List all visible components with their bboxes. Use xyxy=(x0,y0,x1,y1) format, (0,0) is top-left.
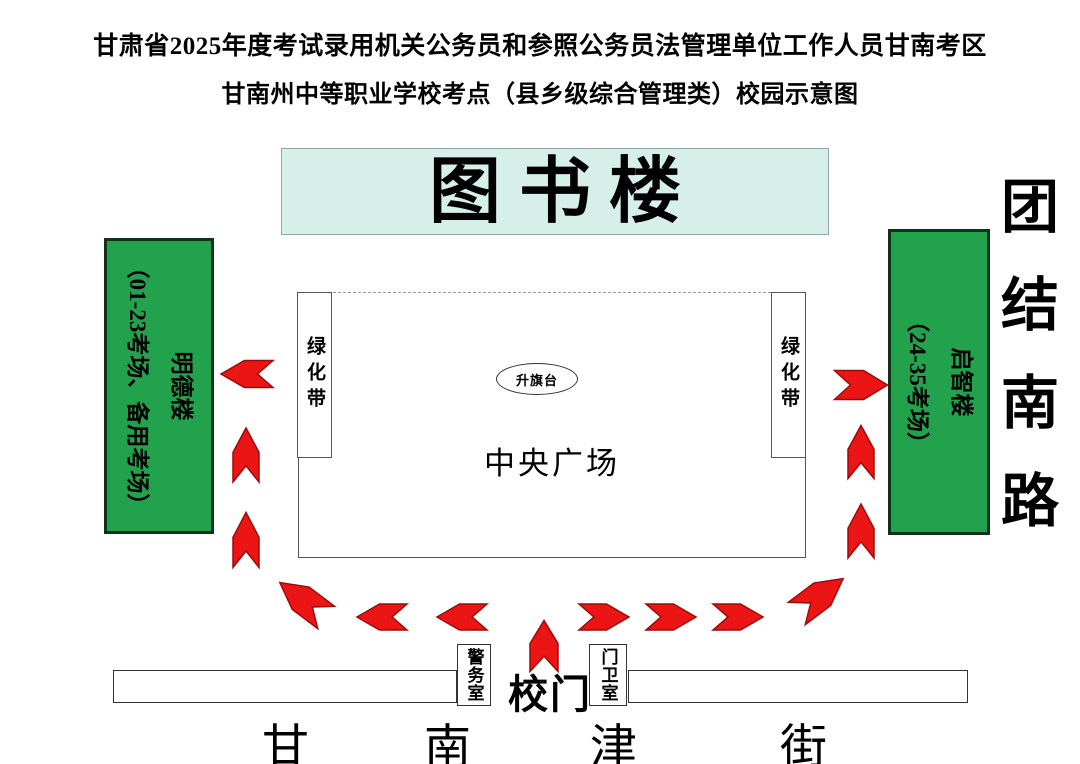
road-south-char: 南 xyxy=(424,708,471,764)
school-gate-label: 校门 xyxy=(508,662,592,720)
qizhi-building: 启智楼 （24-35考场） xyxy=(888,229,990,535)
green-belt-right-label: 绿化带 xyxy=(775,336,802,414)
route-arrow xyxy=(221,361,273,388)
south-wall-right xyxy=(628,670,968,703)
mingde-building-rooms: （01-23考场、备用考场） xyxy=(115,256,159,517)
route-arrow xyxy=(437,604,487,630)
mingde-building-name: 明德楼 xyxy=(159,256,203,517)
south-wall-left xyxy=(113,670,457,703)
road-south-char: 街 xyxy=(780,708,827,764)
campus-map: 甘肃省2025年度考试录用机关公务员和参照公务员法管理单位工作人员甘南考区 甘南… xyxy=(0,0,1080,764)
route-arrow xyxy=(271,571,334,628)
qizhi-building-label: 启智楼 （24-35考场） xyxy=(895,309,983,455)
route-arrow xyxy=(848,426,874,479)
flag-platform-label: 升旗台 xyxy=(516,370,558,389)
route-arrow xyxy=(357,604,407,630)
police-room: 警务室 xyxy=(457,644,491,706)
route-arrow xyxy=(713,604,763,630)
mingde-building-label: 明德楼 （01-23考场、备用考场） xyxy=(115,256,203,517)
qizhi-building-name: 启智楼 xyxy=(939,309,983,455)
road-south-char: 津 xyxy=(590,708,637,764)
central-plaza xyxy=(298,292,806,558)
guard-room-label: 门卫室 xyxy=(600,648,617,702)
route-arrow xyxy=(835,371,888,400)
library-label: 图书楼 xyxy=(429,156,699,228)
qizhi-building-rooms: （24-35考场） xyxy=(895,309,939,455)
route-arrow xyxy=(848,504,874,558)
flag-platform: 升旗台 xyxy=(496,363,578,395)
route-arrow xyxy=(579,604,629,630)
green-belt-left: 绿化带 xyxy=(297,292,332,458)
route-arrow xyxy=(788,567,851,624)
police-room-label: 警务室 xyxy=(466,648,483,702)
library-building: 图书楼 xyxy=(281,148,829,235)
green-belt-left-label: 绿化带 xyxy=(301,336,328,414)
page-title-line-1: 甘肃省2025年度考试录用机关公务员和参照公务员法管理单位工作人员甘南考区 xyxy=(0,26,1080,62)
mingde-building: 明德楼 （01-23考场、备用考场） xyxy=(104,238,214,534)
page-title-line-2: 甘南州中等职业学校考点（县乡级综合管理类）校园示意图 xyxy=(0,74,1080,109)
route-arrow xyxy=(646,604,696,630)
road-east-label: 团结南路 xyxy=(995,176,1053,568)
road-south-char: 甘 xyxy=(262,708,309,764)
green-belt-right: 绿化带 xyxy=(771,292,806,458)
central-plaza-label: 中央广场 xyxy=(298,438,806,483)
guard-room: 门卫室 xyxy=(589,644,627,706)
route-arrow xyxy=(233,428,259,482)
route-arrow xyxy=(233,513,259,568)
